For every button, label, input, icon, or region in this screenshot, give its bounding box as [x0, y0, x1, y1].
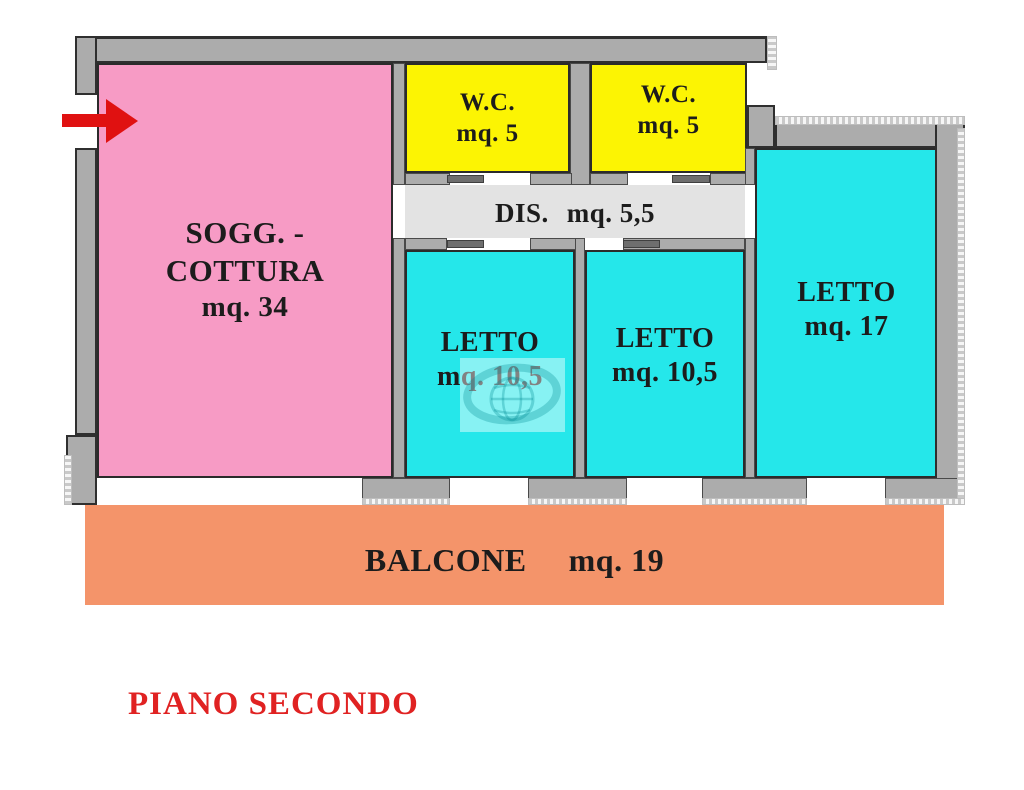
door-letto-center — [623, 240, 660, 248]
wall-letto-right-lower — [745, 238, 755, 478]
label-balcone-area: mq. 19 — [569, 542, 664, 578]
wall-bottom-seg-1-hatch — [362, 498, 450, 505]
door-wc-right — [672, 175, 710, 183]
wall-left-bottom-hatch — [64, 455, 72, 505]
door-wc-left — [447, 175, 484, 183]
wall-top-hatch-cap — [767, 36, 777, 70]
wing-wall-right-hatch — [957, 128, 965, 505]
globe-icon — [460, 358, 565, 432]
wall-bottom-seg-4-hatch — [885, 498, 965, 505]
label-balcone-name: BALCONE — [365, 542, 527, 578]
wall-letto-divider — [575, 238, 585, 478]
wall-left-main — [75, 148, 97, 435]
label-soggiorno-area: mq. 34 — [97, 290, 393, 325]
wing-wall-top-hatch — [775, 116, 965, 125]
label-letto-right-area: mq. 17 — [755, 310, 938, 344]
label-letto-center: LETTO mq. 10,5 — [585, 322, 745, 390]
door-letto-left — [447, 240, 484, 248]
floor-title: PIANO SECONDO — [128, 686, 419, 723]
label-soggiorno-line2: COTTURA — [97, 252, 393, 290]
label-balcone: BALCONEmq. 19 — [85, 541, 944, 580]
wing-corner-block — [747, 105, 775, 148]
wall-above-letto-left-b — [530, 238, 577, 250]
entrance-arrow-icon — [62, 114, 108, 127]
label-letto-center-area: mq. 10,5 — [585, 356, 745, 390]
entrance-arrow-head-icon — [106, 99, 138, 143]
wall-left-upper — [75, 36, 97, 95]
label-soggiorno-line1: SOGG. - — [97, 214, 393, 252]
wall-top — [75, 36, 767, 63]
label-letto-right-name: LETTO — [755, 276, 938, 310]
label-wc-right: W.C. mq. 5 — [590, 80, 747, 141]
label-wc-left: W.C. mq. 5 — [405, 88, 570, 149]
wall-below-wc-left-a — [405, 173, 450, 185]
label-soggiorno: SOGG. - COTTURA mq. 34 — [97, 214, 393, 325]
label-disimpegno-area: mq. 5,5 — [567, 198, 655, 228]
label-wc-right-name: W.C. — [590, 80, 747, 111]
wall-wc-divider — [570, 63, 590, 185]
wall-letto-right-upper — [745, 148, 755, 185]
label-letto-left-name: LETTO — [405, 326, 575, 360]
label-wc-left-area: mq. 5 — [405, 119, 570, 150]
wall-soggiorno-right-lower — [393, 238, 405, 478]
wall-soggiorno-right-upper — [393, 63, 405, 185]
label-letto-right: LETTO mq. 17 — [755, 276, 938, 344]
wall-below-wc-right-a — [590, 173, 628, 185]
label-letto-center-name: LETTO — [585, 322, 745, 356]
floor-plan: SOGG. - COTTURA mq. 34 W.C. mq. 5 W.C. m… — [0, 0, 1024, 790]
label-disimpegno-name: DIS. — [495, 198, 549, 228]
label-disimpegno: DIS.mq. 5,5 — [405, 197, 745, 230]
wall-bottom-seg-2-hatch — [528, 498, 627, 505]
wall-below-wc-right-b — [710, 173, 747, 185]
watermark-globe-logo — [460, 358, 565, 432]
wall-above-letto-left-a — [405, 238, 447, 250]
wall-bottom-seg-3-hatch — [702, 498, 807, 505]
wall-below-wc-left-b — [530, 173, 572, 185]
label-wc-left-name: W.C. — [405, 88, 570, 119]
label-wc-right-area: mq. 5 — [590, 111, 747, 142]
